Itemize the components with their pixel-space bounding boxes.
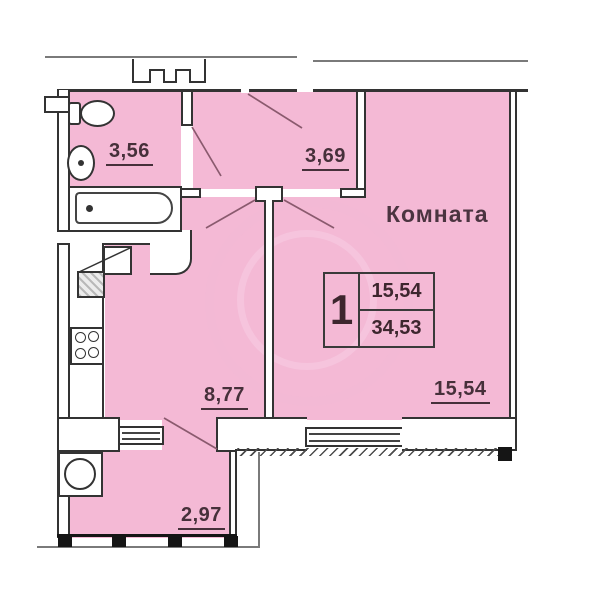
top-wall-right: [313, 62, 528, 92]
top-wall-left: [57, 58, 297, 92]
balcony-railing-post: [112, 536, 126, 547]
entrance-door-post-slot: [241, 86, 249, 93]
balcony-door-gap: [162, 414, 218, 455]
washing-machine-drum-icon: [64, 458, 96, 490]
fridge-hatch-icon: [77, 271, 105, 298]
bathroom-area-label: 3,56: [106, 141, 153, 166]
hallway-right-wall: [356, 92, 366, 192]
balcony-railing-post: [168, 536, 182, 547]
living-room-right-wall: [509, 92, 517, 420]
bathtub-drain-icon: [86, 205, 93, 212]
room-name-label: Комната: [386, 203, 489, 226]
rooms-count: 1: [325, 274, 360, 346]
toilet-bowl-icon: [80, 100, 115, 127]
living-room-window: [305, 427, 404, 447]
bathtub-icon: [68, 186, 182, 232]
balcony-front-edge: [57, 534, 237, 537]
balcony-railing-post: [224, 536, 238, 547]
hallway-area-label: 3,69: [302, 146, 349, 171]
burner-icon: [75, 348, 86, 359]
total-area-value: 34,53: [360, 311, 433, 346]
sink-icon: [67, 145, 95, 181]
balcony-railing-post: [58, 536, 72, 547]
balcony-door-post: [216, 417, 237, 452]
burner-icon: [88, 331, 99, 342]
floor-plan: 3,56 3,69 Комната 15,54 8,77 2,97 1 15,5…: [0, 0, 612, 600]
apartment-info-box: 1 15,54 34,53: [323, 272, 435, 348]
living-area-value: 15,54: [360, 274, 433, 311]
kitchen-room-divider-wall: [264, 200, 274, 420]
kitchen-window: [118, 426, 164, 445]
bathroom-door-opening: [181, 126, 193, 188]
bottom-wall-right-of-window: [402, 417, 517, 451]
hall-wall-corner: [340, 188, 366, 198]
hatched-edge-end-post: [498, 447, 512, 461]
sink-drain-icon: [78, 160, 84, 166]
hall-wall-post-left: [180, 188, 201, 198]
room-area-label: 15,54: [431, 379, 490, 404]
living-room-floor-upper: [362, 92, 511, 192]
ground-outline-vertical: [258, 452, 260, 548]
duct-tab: [44, 96, 70, 113]
bottom-wall-left-of-window: [235, 417, 307, 451]
balcony-right-wall: [229, 452, 237, 538]
corner-cabinet-icon: [103, 246, 132, 275]
stove-icon: [70, 327, 104, 365]
kitchen-door-opening: [201, 189, 255, 197]
washing-machine-icon: [58, 452, 103, 497]
hatched-edge-line: [237, 448, 499, 456]
hallway-floor: [190, 92, 360, 192]
balcony-area-label: 2,97: [178, 505, 225, 530]
bathroom-right-wall: [181, 92, 193, 126]
burner-icon: [75, 332, 86, 343]
kitchen-area-label: 8,77: [201, 385, 248, 410]
burner-icon: [88, 347, 99, 358]
room-door-opening: [283, 189, 340, 197]
corner-wall-block: [150, 230, 192, 275]
kitchen-bottom-wall: [57, 417, 120, 452]
